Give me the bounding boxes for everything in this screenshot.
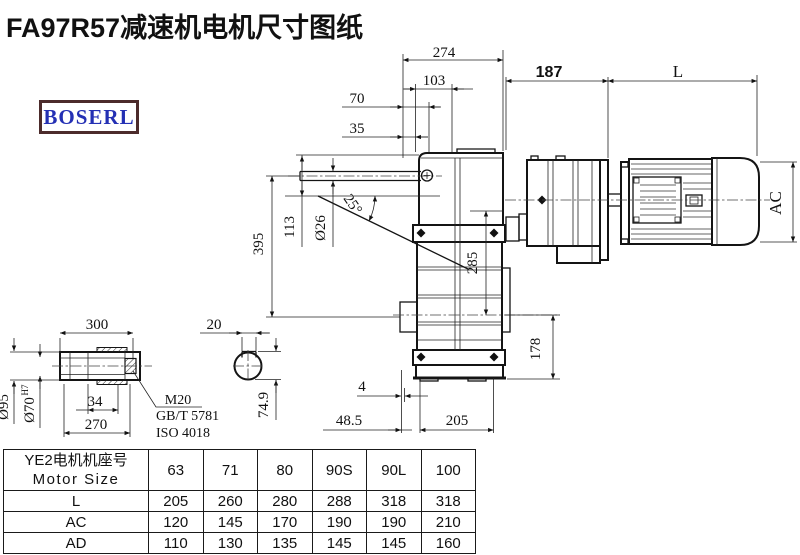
table-cell: 145 xyxy=(367,533,422,554)
dim-AC-label: AC xyxy=(766,191,785,215)
row-label: L xyxy=(4,491,149,512)
shaft-cross-section: 20 74.9 xyxy=(200,317,281,420)
table-cell: 280 xyxy=(258,491,313,512)
table-cell: 130 xyxy=(203,533,258,554)
size-col-71: 71 xyxy=(203,450,258,491)
dim-187-label: 187 xyxy=(536,64,563,81)
size-col-100: 100 xyxy=(421,450,476,491)
table-cell: 135 xyxy=(258,533,313,554)
hollow-shaft-detail: 300 Ø95 Ø70 H7 34 270 M20 GB/T 5781 ISO … xyxy=(0,317,219,441)
size-col-80: 80 xyxy=(258,450,313,491)
row-label: AC xyxy=(4,512,149,533)
dim-34-label: 34 xyxy=(88,394,104,410)
dim-205-label: 205 xyxy=(446,413,469,429)
dim-dia95-label: Ø95 xyxy=(0,394,12,420)
table-cell: 318 xyxy=(367,491,422,512)
table-header-row: YE2电机机座号 Motor Size 63 71 80 90S 90L 100 xyxy=(4,450,476,491)
dim-300-label: 300 xyxy=(86,317,109,333)
dim-h7-tolerance-label: H7 xyxy=(20,384,30,395)
table-cell: 210 xyxy=(421,512,476,533)
motor-size-table: YE2电机机座号 Motor Size 63 71 80 90S 90L 100… xyxy=(3,449,476,554)
motor-size-header-cn: YE2电机机座号 xyxy=(4,451,148,470)
bolt-spec-gbt5781: GB/T 5781 xyxy=(156,409,219,424)
table-cell: 260 xyxy=(203,491,258,512)
table-cell: 160 xyxy=(421,533,476,554)
dim-35-label: 35 xyxy=(350,121,365,137)
table-cell: 318 xyxy=(421,491,476,512)
table-cell: 145 xyxy=(312,533,367,554)
table-cell: 145 xyxy=(203,512,258,533)
dim-178-label: 178 xyxy=(528,338,544,361)
dim-70-label: 70 xyxy=(350,91,365,107)
table-cell: 120 xyxy=(149,512,204,533)
dim-270-label: 270 xyxy=(85,417,108,433)
dim-4-label: 4 xyxy=(358,379,366,395)
row-label: AD xyxy=(4,533,149,554)
motor-size-header-cell: YE2电机机座号 Motor Size xyxy=(4,450,149,491)
dimension-annotations: 274 103 70 35 187 L AC xyxy=(251,45,797,433)
dim-L-label: L xyxy=(673,62,683,81)
dim-395-label: 395 xyxy=(251,233,267,256)
dim-dia26-label: Ø26 xyxy=(313,215,329,241)
dim-48.5-label: 48.5 xyxy=(336,413,362,429)
table-cell: 288 xyxy=(312,491,367,512)
size-col-90L: 90L xyxy=(367,450,422,491)
dim-103-label: 103 xyxy=(423,73,446,89)
motor-size-header-en: Motor Size xyxy=(4,470,148,489)
bolt-spec-m20: M20 xyxy=(165,393,191,408)
dim-285-label: 285 xyxy=(465,252,481,275)
table-cell: 170 xyxy=(258,512,313,533)
table-cell: 110 xyxy=(149,533,204,554)
r57-gear-unit-side-view xyxy=(506,156,608,263)
table-row-AD: AD 110 130 135 145 145 160 xyxy=(4,533,476,554)
size-col-90S: 90S xyxy=(312,450,367,491)
table-cell: 205 xyxy=(149,491,204,512)
dim-dia70-label: Ø70 xyxy=(22,397,38,423)
fa-gearbox-front-view xyxy=(285,149,560,381)
table-row-L: L 205 260 280 288 318 318 xyxy=(4,491,476,512)
dim-20-label: 20 xyxy=(207,317,222,333)
dim-113-label: 113 xyxy=(282,216,298,238)
table-cell: 190 xyxy=(367,512,422,533)
dim-274-label: 274 xyxy=(433,45,456,61)
dim-74.9-label: 74.9 xyxy=(256,392,272,418)
size-col-63: 63 xyxy=(149,450,204,491)
dim-25deg-label: 25° xyxy=(340,192,365,218)
bolt-spec-iso4018: ISO 4018 xyxy=(156,426,210,441)
table-row-AC: AC 120 145 170 190 190 210 xyxy=(4,512,476,533)
table-cell: 190 xyxy=(312,512,367,533)
